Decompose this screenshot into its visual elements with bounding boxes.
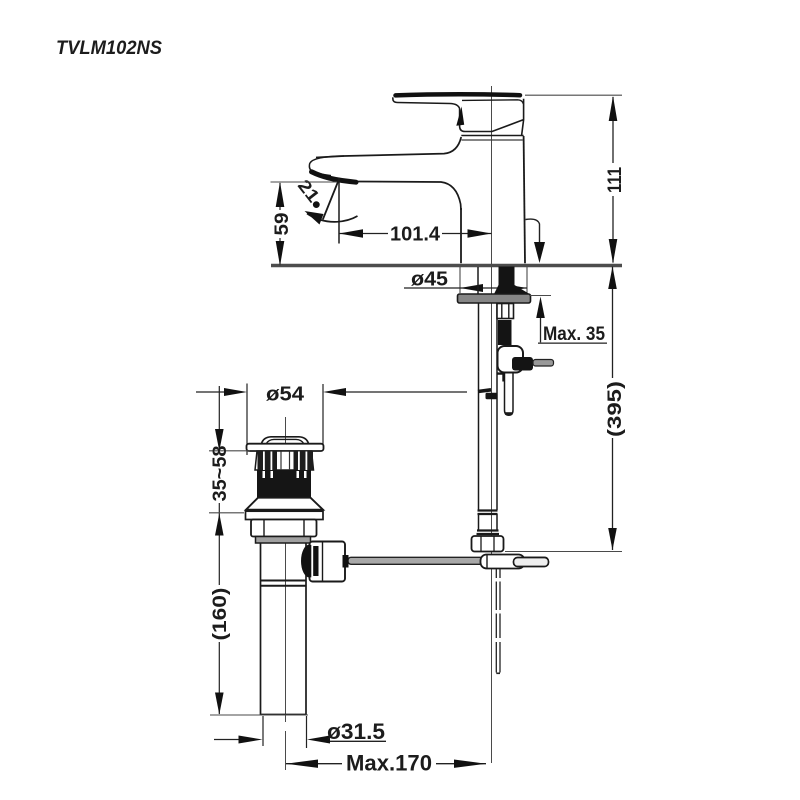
svg-text:ø54: ø54 <box>266 384 305 406</box>
svg-text:(160): (160) <box>210 588 231 641</box>
svg-text:(395): (395) <box>605 381 626 437</box>
svg-text:ø31.5: ø31.5 <box>327 719 385 744</box>
svg-text:101.4: 101.4 <box>390 224 441 246</box>
svg-text:ø45: ø45 <box>411 269 448 291</box>
svg-text:TVLM102NS: TVLM102NS <box>56 38 162 59</box>
svg-text:Max. 35: Max. 35 <box>543 324 605 345</box>
svg-text:Max.170: Max.170 <box>346 751 432 776</box>
svg-text:111: 111 <box>605 167 626 193</box>
svg-text:59: 59 <box>272 213 293 236</box>
svg-text:35~58: 35~58 <box>210 446 231 502</box>
